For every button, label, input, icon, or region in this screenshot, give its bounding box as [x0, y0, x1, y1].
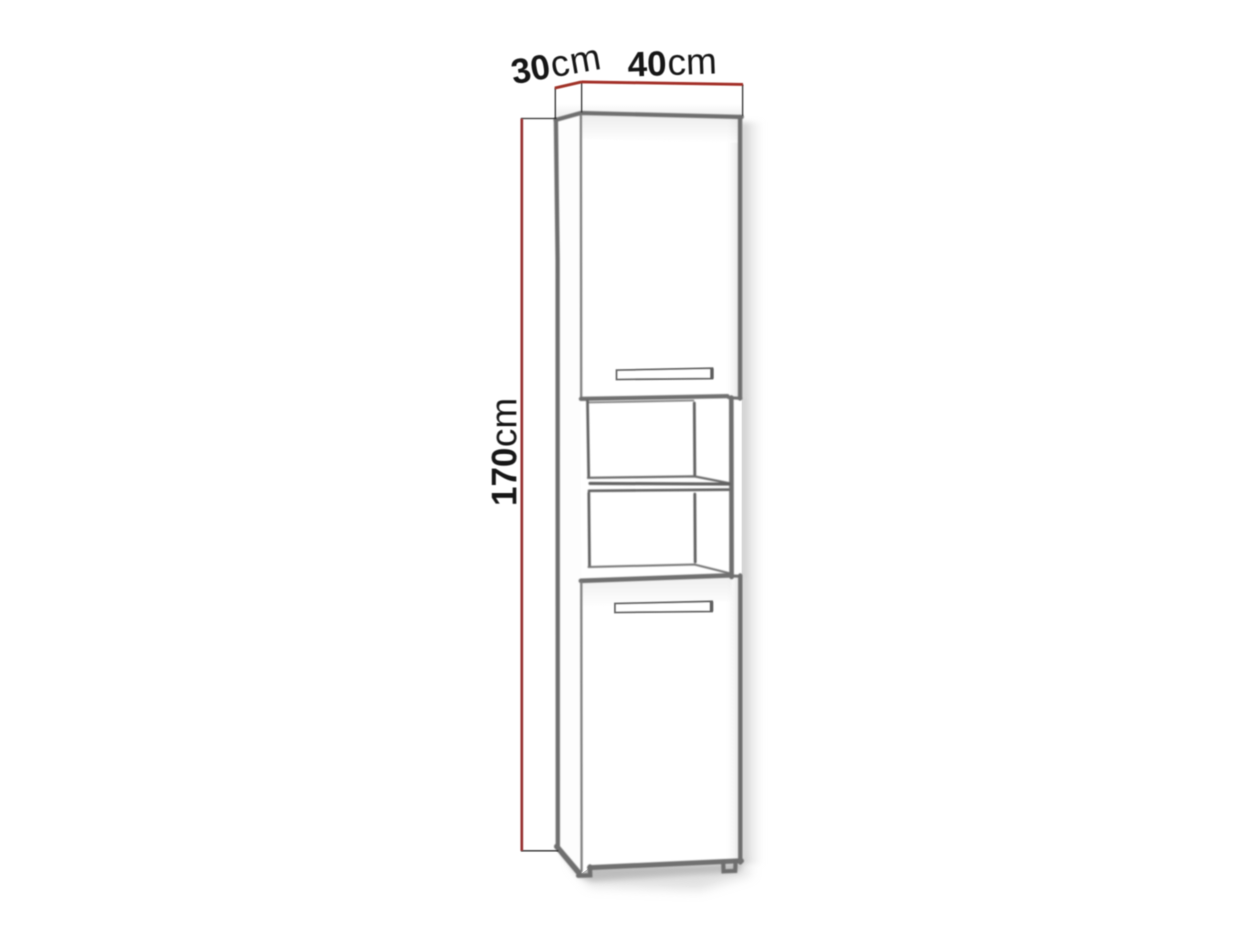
svg-text:170cm: 170cm	[483, 398, 524, 506]
svg-text:40cm: 40cm	[627, 40, 718, 84]
